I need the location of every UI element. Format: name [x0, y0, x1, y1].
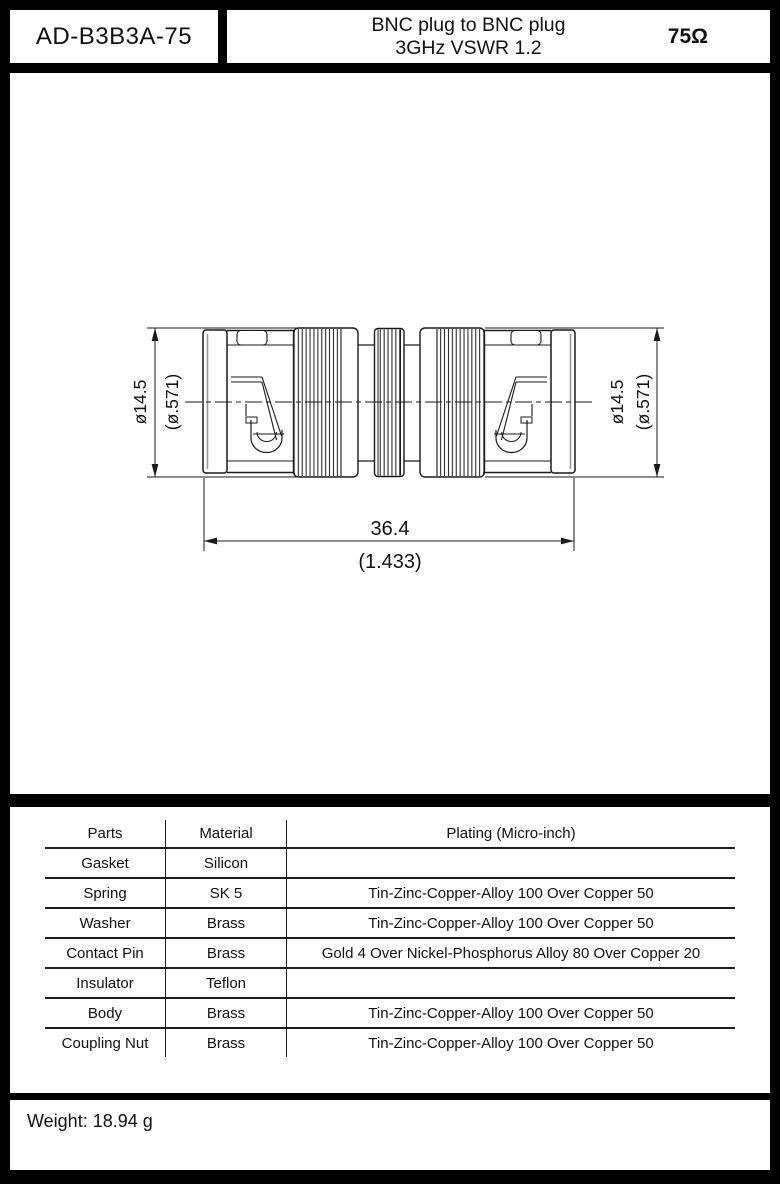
- dim-diameter-mm-left: ø14.5: [130, 380, 150, 425]
- part-cell: Coupling Nut: [45, 1029, 166, 1057]
- footer-panel: Weight: 18.94 g: [10, 1100, 770, 1170]
- table-row: Body Brass Tin-Zinc-Copper-Alloy 100 Ove…: [45, 999, 735, 1029]
- dim-diameter-mm-right: ø14.5: [607, 380, 627, 425]
- material-cell: Brass: [166, 999, 287, 1027]
- materials-table: Parts Material Plating (Micro-inch) Gask…: [45, 820, 735, 1057]
- part-cell: Body: [45, 999, 166, 1027]
- dim-length-inch: (1.433): [358, 551, 421, 573]
- part-cell: Gasket: [45, 849, 166, 877]
- table-row: Spring SK 5 Tin-Zinc-Copper-Alloy 100 Ov…: [45, 879, 735, 909]
- part-cell: Contact Pin: [45, 939, 166, 967]
- material-cell: Brass: [166, 939, 287, 967]
- plating-cell: Gold 4 Over Nickel-Phosphorus Alloy 80 O…: [287, 939, 735, 967]
- plating-cell: Tin-Zinc-Copper-Alloy 100 Over Copper 50: [287, 1029, 735, 1057]
- table-row: Insulator Teflon: [45, 969, 735, 999]
- table-row: Contact Pin Brass Gold 4 Over Nickel-Pho…: [45, 939, 735, 969]
- material-cell: Brass: [166, 1029, 287, 1057]
- plating-cell: Tin-Zinc-Copper-Alloy 100 Over Copper 50: [287, 999, 735, 1027]
- plating-cell: Tin-Zinc-Copper-Alloy 100 Over Copper 50: [287, 879, 735, 907]
- material-cell: SK 5: [166, 879, 287, 907]
- title-line-1: BNC plug to BNC plug: [371, 14, 565, 37]
- title-cell: BNC plug to BNC plug 3GHz VSWR 1.2 75Ω: [227, 10, 770, 63]
- part-number-cell: AD-B3B3A-75: [10, 10, 218, 63]
- plating-cell: [287, 969, 735, 997]
- col-header-plating: Plating (Micro-inch): [287, 820, 735, 847]
- drawing-panel: ø14.5 (ø.571) ø14.5 (ø.571) 36.4 (1.433): [10, 73, 770, 794]
- connector-technical-drawing: ø14.5 (ø.571) ø14.5 (ø.571) 36.4 (1.433): [10, 73, 770, 794]
- part-cell: Insulator: [45, 969, 166, 997]
- datasheet-page: { "header": { "part_number": "AD-B3B3A-7…: [0, 0, 780, 1184]
- title-line-2: 3GHz VSWR 1.2: [395, 37, 541, 60]
- plating-cell: [287, 849, 735, 877]
- materials-panel: Parts Material Plating (Micro-inch) Gask…: [10, 807, 770, 1093]
- part-cell: Washer: [45, 909, 166, 937]
- dim-diameter-inch-left: (ø.571): [162, 374, 182, 430]
- weight-label: Weight: 18.94 g: [27, 1111, 153, 1132]
- dimension-arrowheads: [152, 328, 661, 544]
- table-row: Gasket Silicon: [45, 849, 735, 879]
- table-row: Washer Brass Tin-Zinc-Copper-Alloy 100 O…: [45, 909, 735, 939]
- material-cell: Brass: [166, 909, 287, 937]
- part-cell: Spring: [45, 879, 166, 907]
- material-cell: Silicon: [166, 849, 287, 877]
- dim-diameter-inch-right: (ø.571): [633, 374, 653, 430]
- material-cell: Teflon: [166, 969, 287, 997]
- dim-length-mm: 36.4: [371, 518, 410, 540]
- impedance-label: 75Ω: [668, 25, 708, 49]
- col-header-parts: Parts: [45, 820, 166, 847]
- table-header-row: Parts Material Plating (Micro-inch): [45, 820, 735, 849]
- part-number: AD-B3B3A-75: [36, 23, 192, 51]
- table-row: Coupling Nut Brass Tin-Zinc-Copper-Alloy…: [45, 1029, 735, 1057]
- plating-cell: Tin-Zinc-Copper-Alloy 100 Over Copper 50: [287, 909, 735, 937]
- col-header-material: Material: [166, 820, 287, 847]
